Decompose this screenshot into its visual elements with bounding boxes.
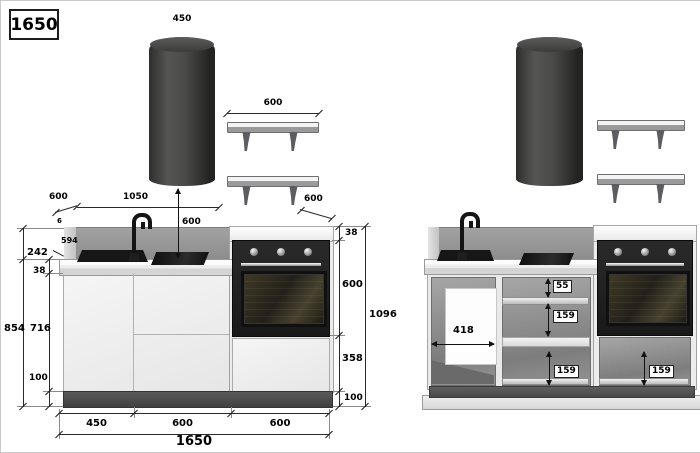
shelf-board	[227, 176, 319, 187]
oven-knob	[304, 248, 312, 256]
dim-counter-depth: 594	[61, 235, 78, 246]
wall-shelf-upper	[597, 120, 685, 152]
dim-bottom-gap-mid: 159	[554, 365, 579, 378]
dim-run-width: 1050	[123, 192, 148, 203]
kitchen-drawing: 1650 450 600 600 600 1050 600 6 594	[0, 0, 700, 453]
faucet	[457, 212, 477, 260]
dim-arrow-hood-clearance	[178, 189, 179, 258]
dim-hood-width: 450	[151, 14, 213, 25]
shelf-bracket	[611, 184, 620, 203]
oven-handle	[241, 263, 322, 266]
faucet-base	[457, 252, 467, 260]
dim-line	[339, 226, 340, 407]
dim-opening-width: 418	[453, 325, 474, 336]
dim-side-height: 854	[4, 323, 25, 334]
dim-line	[365, 226, 366, 407]
dim-leader	[53, 250, 64, 257]
oven-window	[606, 271, 691, 326]
dim-splash-height: 242	[27, 247, 48, 258]
dim-plinth-left: 100	[29, 373, 48, 384]
dim-shelf-depth: 600	[304, 194, 323, 205]
faucet-leg	[460, 220, 464, 253]
shelf-bracket	[242, 186, 251, 205]
dim-counter-depth-diagonal: 600	[49, 192, 68, 203]
oven-handle	[606, 263, 685, 266]
wall-shelf-upper	[227, 122, 319, 154]
dim-shelf-gap: 159	[553, 310, 578, 323]
dim-arrow-top-gap	[548, 279, 549, 297]
shelf-board	[597, 174, 685, 185]
oven-knob	[614, 248, 622, 256]
oven-knob	[277, 248, 285, 256]
dim-front-height: 716	[30, 323, 51, 334]
oven-drawer-front	[232, 338, 330, 393]
shelf-bracket	[656, 184, 665, 203]
shelf-board	[227, 122, 319, 133]
cooktop	[519, 253, 574, 265]
shelf-bracket	[289, 132, 298, 151]
dim-top-panel: 38	[345, 228, 358, 239]
dim-shelf-width: 600	[227, 98, 319, 109]
dim-seg2: 600	[134, 418, 231, 429]
dim-arrow-bottom-gap-mid	[549, 352, 550, 385]
plinth	[63, 391, 333, 408]
dim-hood-clearance: 600	[182, 217, 201, 228]
shelf-board	[597, 120, 685, 131]
shelf-bracket	[289, 186, 298, 205]
shelf-bracket	[611, 130, 620, 149]
dim-arrow-shelf-gap	[548, 304, 549, 336]
interior-rail	[502, 337, 590, 347]
dim-line-diagonal	[300, 209, 332, 219]
dim-oven-height: 600	[342, 279, 363, 290]
countertop	[424, 259, 600, 275]
faucet-spout	[469, 221, 473, 228]
shelf-bracket	[242, 132, 251, 151]
dim-plinth-right: 100	[344, 393, 363, 404]
plinth	[429, 386, 695, 398]
faucet-leg	[132, 221, 136, 254]
dim-bottom-gap-oven: 159	[649, 365, 674, 378]
dim-line	[77, 207, 219, 208]
cabinet-divider	[133, 274, 134, 391]
faucet	[129, 213, 149, 261]
dim-top-gap: 55	[553, 280, 572, 293]
range-hood	[516, 37, 583, 186]
drawer-divider	[133, 334, 229, 335]
drawing-title-box: 1650	[9, 9, 59, 40]
dim-seg1: 450	[59, 418, 134, 429]
dim-total-height: 1096	[369, 309, 397, 320]
dim-arrow-bottom-gap-oven	[644, 352, 645, 385]
dim-arrow-opening-width	[432, 344, 494, 345]
faucet-spout	[141, 222, 145, 229]
oven-window	[241, 271, 328, 327]
oven	[597, 240, 693, 336]
dim-line	[59, 413, 329, 414]
dim-counter-thickness: 38	[33, 266, 46, 277]
faucet-base	[129, 253, 139, 261]
oven-knob	[668, 248, 676, 256]
wall-shelf-lower	[597, 174, 685, 206]
oven-knob	[250, 248, 258, 256]
backsplash-side-edge	[428, 227, 439, 260]
dim-total-width: 1650	[59, 436, 329, 447]
oven	[232, 240, 330, 337]
dim-splash-thickness: 6	[57, 216, 62, 227]
range-hood	[149, 37, 215, 186]
shelf-bracket	[656, 130, 665, 149]
dim-drawer-height: 358	[342, 353, 363, 364]
dim-seg3: 600	[231, 418, 329, 429]
dim-line	[23, 228, 24, 407]
dim-line	[227, 113, 319, 114]
oven-knob	[641, 248, 649, 256]
